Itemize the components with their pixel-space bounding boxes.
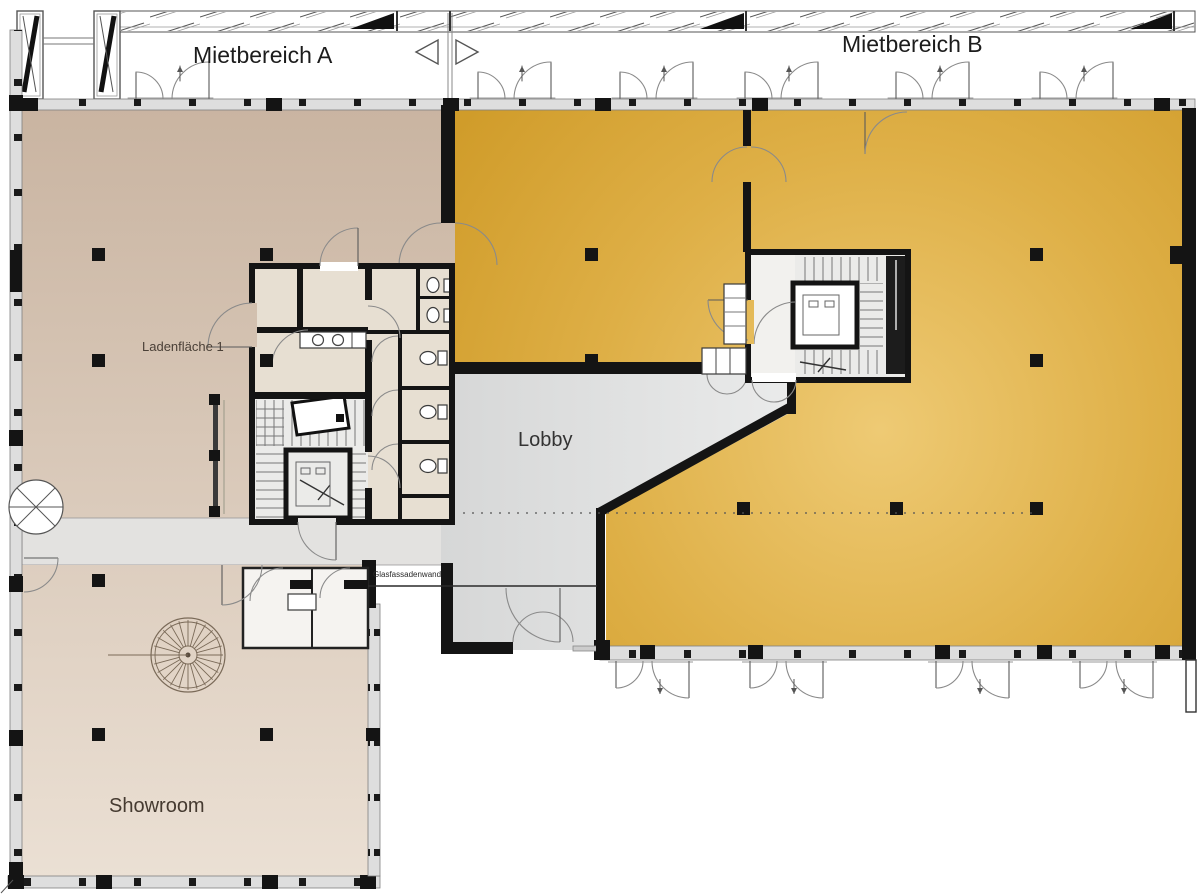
arrow-left-icon	[416, 40, 438, 64]
entry-corridor	[22, 518, 455, 565]
mietbereich-a-label: Mietbereich A	[193, 44, 332, 67]
bottom-door-swings	[608, 661, 1157, 698]
shelf	[724, 284, 746, 344]
cabinet	[702, 348, 746, 374]
revolving-door	[9, 480, 63, 534]
floor-plan: Mietbereich A Mietbereich B Ladenfläche …	[0, 0, 1200, 895]
kitchen-counter	[300, 332, 366, 348]
lobby-label: Lobby	[518, 430, 573, 450]
showroom-bottom-curtain-wall	[1, 875, 380, 893]
mietbereich-b-label: Mietbereich B	[842, 33, 983, 56]
facade-window-box	[94, 11, 120, 99]
showroom-label: Showroom	[109, 796, 205, 816]
ladenflaeche-label: Ladenfläche 1	[142, 340, 224, 353]
rooms-below-corridor	[222, 565, 368, 648]
top-louvre-band	[120, 11, 1195, 32]
glass-facade-label: Glasfassadenwand	[373, 571, 441, 579]
top-curtain-wall	[22, 98, 1195, 111]
arrow-right-icon	[456, 40, 478, 64]
left-curtain-wall	[9, 30, 23, 888]
table	[288, 594, 316, 610]
floor-plan-drawing	[0, 0, 1200, 895]
